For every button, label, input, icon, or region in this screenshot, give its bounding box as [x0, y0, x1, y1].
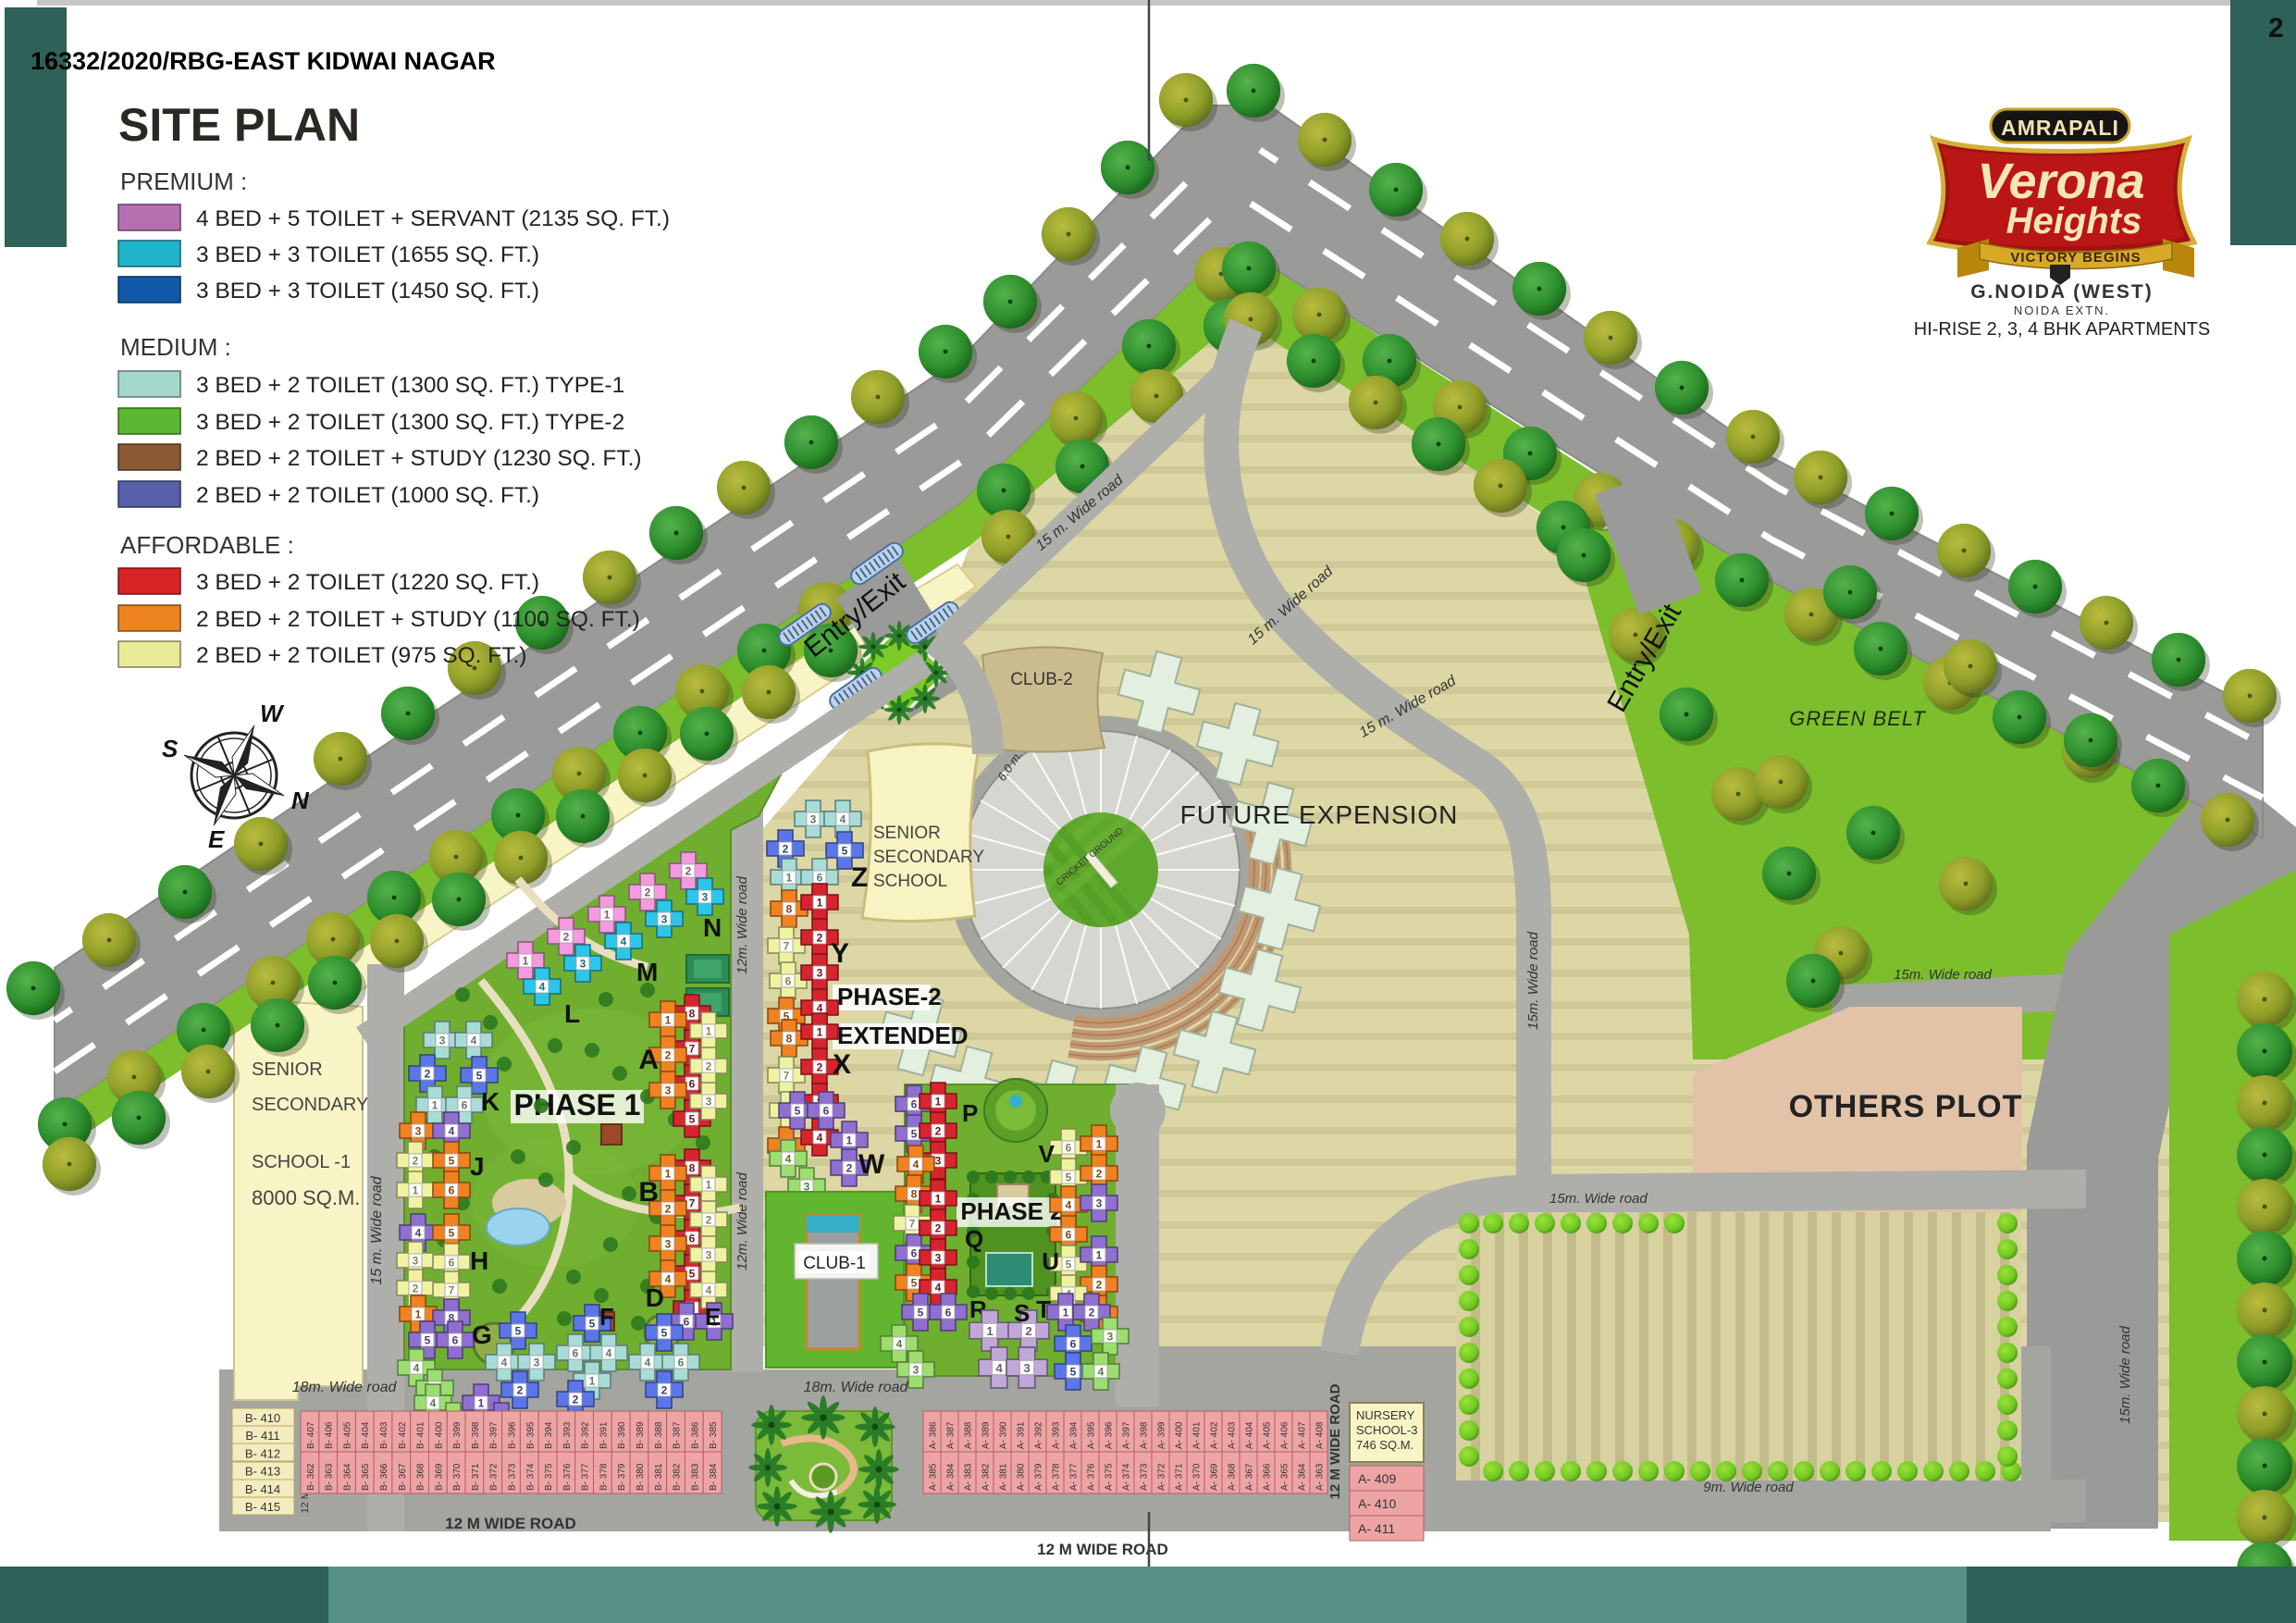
svg-text:B- 379: B- 379 — [617, 1463, 627, 1491]
svg-text:7: 7 — [449, 1284, 455, 1297]
svg-text:F: F — [599, 1303, 614, 1331]
svg-text:3: 3 — [810, 813, 817, 826]
svg-text:1: 1 — [415, 1308, 422, 1321]
svg-text:A- 378: A- 378 — [1052, 1463, 1062, 1491]
svg-text:2: 2 — [413, 1282, 419, 1295]
svg-text:1: 1 — [478, 1397, 485, 1410]
svg-text:16332/2020/RBG-EAST KIDWAI NAG: 16332/2020/RBG-EAST KIDWAI NAGAR — [31, 47, 496, 75]
svg-text:A- 389: A- 389 — [981, 1421, 992, 1449]
svg-text:1: 1 — [665, 1168, 672, 1181]
svg-text:8: 8 — [689, 1008, 696, 1021]
svg-text:6: 6 — [449, 1257, 455, 1270]
svg-text:3: 3 — [1107, 1331, 1114, 1344]
svg-text:4: 4 — [935, 1282, 942, 1295]
svg-text:CLUB-1: CLUB-1 — [803, 1254, 866, 1273]
svg-text:4 BED + 5 TOILET + SERVANT (21: 4 BED + 5 TOILET + SERVANT (2135 SQ. FT.… — [196, 206, 670, 231]
svg-text:6: 6 — [785, 975, 792, 988]
svg-text:SENIOR: SENIOR — [252, 1059, 323, 1080]
svg-text:1: 1 — [432, 1099, 438, 1112]
svg-text:PHASE 1: PHASE 1 — [514, 1088, 641, 1121]
svg-text:3: 3 — [415, 1125, 422, 1138]
svg-text:2: 2 — [661, 1384, 668, 1397]
svg-text:H: H — [470, 1246, 488, 1275]
svg-text:7: 7 — [689, 1197, 696, 1210]
svg-text:SCHOOL-3: SCHOOL-3 — [1356, 1423, 1417, 1437]
svg-text:B- 405: B- 405 — [342, 1421, 352, 1449]
svg-text:4: 4 — [414, 1362, 420, 1375]
svg-text:A- 385: A- 385 — [929, 1463, 939, 1491]
svg-text:6: 6 — [823, 1105, 830, 1118]
svg-text:6: 6 — [573, 1347, 579, 1360]
svg-text:U: U — [1042, 1247, 1059, 1275]
svg-text:A- 365: A- 365 — [1280, 1463, 1290, 1491]
svg-text:A- 397: A- 397 — [1122, 1421, 1132, 1449]
svg-text:B- 375: B- 375 — [544, 1463, 554, 1491]
svg-text:S: S — [162, 735, 179, 762]
svg-text:GREEN BELT: GREEN BELT — [1789, 707, 1926, 730]
svg-text:1: 1 — [846, 1134, 853, 1147]
svg-text:M: M — [636, 958, 658, 986]
svg-text:A- 367: A- 367 — [1245, 1463, 1255, 1491]
svg-text:2: 2 — [645, 886, 651, 899]
svg-text:746 SQ.M.: 746 SQ.M. — [1356, 1438, 1413, 1452]
svg-text:A- 401: A- 401 — [1192, 1421, 1203, 1449]
svg-text:E: E — [705, 1303, 721, 1331]
svg-text:18m. Wide road: 18m. Wide road — [804, 1380, 909, 1395]
svg-text:3: 3 — [817, 967, 823, 980]
svg-text:3: 3 — [665, 1084, 672, 1097]
svg-text:B- 381: B- 381 — [654, 1463, 664, 1491]
svg-text:A- 399: A- 399 — [1157, 1421, 1167, 1449]
svg-text:3: 3 — [702, 891, 709, 904]
svg-text:15m. Wide road: 15m. Wide road — [1894, 967, 1992, 983]
svg-text:A- 369: A- 369 — [1210, 1463, 1220, 1491]
svg-text:5: 5 — [911, 1277, 918, 1290]
svg-text:B- 389: B- 389 — [636, 1421, 646, 1449]
svg-text:A- 366: A- 366 — [1263, 1463, 1273, 1491]
svg-text:5: 5 — [842, 845, 848, 858]
svg-text:A- 411: A- 411 — [1358, 1521, 1395, 1536]
svg-text:A- 408: A- 408 — [1315, 1421, 1326, 1449]
svg-text:12 M WIDE ROAD: 12 M WIDE ROAD — [1327, 1383, 1343, 1499]
svg-text:A- 407: A- 407 — [1298, 1421, 1308, 1449]
svg-text:A- 377: A- 377 — [1069, 1463, 1080, 1491]
svg-text:5: 5 — [1070, 1366, 1077, 1379]
svg-text:A- 400: A- 400 — [1175, 1421, 1185, 1449]
svg-text:A- 386: A- 386 — [929, 1421, 939, 1449]
svg-text:B- 380: B- 380 — [636, 1463, 646, 1491]
svg-text:3: 3 — [935, 1155, 942, 1168]
svg-text:4: 4 — [817, 1132, 823, 1145]
svg-text:3: 3 — [665, 1238, 672, 1251]
svg-text:E: E — [208, 825, 225, 853]
svg-text:1: 1 — [413, 1184, 419, 1197]
svg-text:4: 4 — [785, 1153, 792, 1166]
svg-text:B- 376: B- 376 — [562, 1463, 573, 1491]
svg-text:4: 4 — [449, 1125, 455, 1138]
svg-text:12 M WIDE ROAD: 12 M WIDE ROAD — [445, 1515, 576, 1532]
svg-text:5: 5 — [425, 1334, 431, 1347]
svg-text:6: 6 — [449, 1184, 455, 1197]
svg-text:2: 2 — [665, 1203, 672, 1216]
svg-text:1: 1 — [523, 955, 529, 968]
svg-text:SITE PLAN: SITE PLAN — [118, 99, 360, 151]
svg-text:3 BED + 3 TOILET (1450 SQ. FT.: 3 BED + 3 TOILET (1450 SQ. FT.) — [196, 279, 539, 304]
svg-text:4: 4 — [1098, 1366, 1105, 1379]
svg-text:5: 5 — [1066, 1171, 1072, 1184]
svg-text:B- 362: B- 362 — [306, 1463, 316, 1491]
svg-text:2: 2 — [1096, 1279, 1103, 1292]
svg-text:4: 4 — [995, 1361, 1003, 1375]
svg-text:1: 1 — [935, 1193, 942, 1206]
svg-text:HI-RISE 2, 3, 4 BHK APARTMENTS: HI-RISE 2, 3, 4 BHK APARTMENTS — [1914, 319, 2210, 340]
svg-text:EXTENDED: EXTENDED — [837, 1022, 969, 1049]
svg-text:A- 393: A- 393 — [1052, 1421, 1062, 1449]
svg-text:8: 8 — [786, 903, 793, 916]
svg-text:B- 367: B- 367 — [398, 1463, 408, 1491]
svg-text:4: 4 — [415, 1227, 422, 1240]
svg-text:AFFORDABLE :: AFFORDABLE : — [120, 531, 294, 559]
svg-text:B- 413: B- 413 — [245, 1465, 280, 1479]
svg-text:B- 390: B- 390 — [617, 1421, 627, 1449]
svg-text:A- 363: A- 363 — [1315, 1463, 1326, 1491]
svg-text:PHASE-2: PHASE-2 — [837, 983, 942, 1010]
svg-text:8: 8 — [689, 1162, 696, 1175]
svg-text:1: 1 — [986, 1324, 993, 1338]
svg-text:AMRAPALI: AMRAPALI — [2001, 116, 2119, 140]
svg-text:N: N — [703, 913, 722, 942]
svg-text:2: 2 — [413, 1155, 419, 1168]
svg-text:A: A — [638, 1045, 659, 1075]
svg-text:B- 414: B- 414 — [245, 1482, 280, 1496]
svg-text:1: 1 — [817, 897, 823, 910]
svg-text:B- 383: B- 383 — [690, 1463, 700, 1491]
svg-text:B- 366: B- 366 — [379, 1463, 389, 1491]
svg-text:SECONDARY: SECONDARY — [873, 848, 984, 867]
svg-text:B- 372: B- 372 — [489, 1463, 500, 1491]
svg-text:3: 3 — [413, 1255, 419, 1268]
svg-text:3 BED + 3 TOILET (1655 SQ. FT.: 3 BED + 3 TOILET (1655 SQ. FT.) — [196, 242, 539, 267]
svg-text:A- 382: A- 382 — [981, 1463, 992, 1491]
svg-text:A- 372: A- 372 — [1157, 1463, 1167, 1491]
svg-text:5: 5 — [689, 1268, 696, 1281]
svg-text:6: 6 — [1066, 1229, 1072, 1242]
svg-text:SCHOOL: SCHOOL — [873, 872, 947, 891]
svg-text:B- 364: B- 364 — [342, 1463, 352, 1491]
svg-text:B- 388: B- 388 — [654, 1421, 664, 1449]
svg-text:A- 373: A- 373 — [1140, 1463, 1150, 1491]
svg-text:7: 7 — [689, 1043, 696, 1056]
svg-text:B- 365: B- 365 — [361, 1463, 371, 1491]
svg-text:4: 4 — [539, 981, 546, 994]
svg-text:7: 7 — [909, 1218, 916, 1231]
svg-text:A- 375: A- 375 — [1105, 1463, 1115, 1491]
svg-text:1: 1 — [1063, 1307, 1069, 1319]
svg-text:15m. Wide road: 15m. Wide road — [1525, 931, 1541, 1029]
svg-text:B- 368: B- 368 — [416, 1463, 426, 1491]
svg-text:B- 401: B- 401 — [416, 1421, 426, 1449]
svg-text:B- 398: B- 398 — [471, 1421, 481, 1449]
svg-text:15 m. Wide road: 15 m. Wide road — [369, 1175, 385, 1284]
svg-text:B- 385: B- 385 — [709, 1421, 719, 1449]
svg-text:1: 1 — [1096, 1249, 1103, 1262]
svg-text:2: 2 — [1096, 1168, 1103, 1181]
svg-text:A- 381: A- 381 — [999, 1463, 1009, 1491]
svg-text:1: 1 — [589, 1375, 596, 1388]
svg-text:A- 379: A- 379 — [1034, 1463, 1044, 1491]
svg-text:2: 2 — [1089, 1307, 1095, 1319]
svg-text:4: 4 — [621, 935, 627, 948]
svg-text:5: 5 — [449, 1155, 455, 1168]
svg-text:1: 1 — [1096, 1138, 1103, 1151]
svg-text:A- 391: A- 391 — [1017, 1421, 1027, 1449]
svg-text:6: 6 — [911, 1098, 918, 1111]
svg-text:2: 2 — [665, 1049, 672, 1062]
svg-text:3 BED + 2 TOILET (1300 SQ. FT.: 3 BED + 2 TOILET (1300 SQ. FT.) TYPE-1 — [196, 373, 624, 398]
svg-text:B- 374: B- 374 — [525, 1463, 536, 1491]
svg-text:B- 378: B- 378 — [599, 1463, 609, 1491]
svg-text:6: 6 — [1070, 1338, 1077, 1351]
svg-text:B- 397: B- 397 — [489, 1421, 500, 1449]
svg-text:B- 407: B- 407 — [306, 1421, 316, 1449]
svg-text:2: 2 — [685, 865, 692, 878]
svg-text:3: 3 — [580, 958, 586, 971]
svg-text:2: 2 — [817, 932, 823, 945]
svg-text:5: 5 — [449, 1227, 455, 1240]
svg-text:3: 3 — [439, 1035, 446, 1047]
svg-text:18m. Wide road: 18m. Wide road — [292, 1380, 398, 1395]
svg-text:15m. Wide road: 15m. Wide road — [1549, 1191, 1648, 1207]
svg-text:7: 7 — [784, 1070, 790, 1083]
svg-text:Y: Y — [831, 938, 849, 969]
svg-text:A- 410: A- 410 — [1358, 1496, 1396, 1511]
svg-text:W: W — [858, 1149, 885, 1180]
svg-text:1: 1 — [935, 1096, 942, 1109]
svg-text:A- 376: A- 376 — [1087, 1463, 1097, 1491]
svg-text:D: D — [646, 1283, 664, 1312]
svg-text:N: N — [291, 787, 310, 814]
svg-text:B- 392: B- 392 — [581, 1421, 591, 1449]
svg-text:B- 377: B- 377 — [581, 1463, 591, 1491]
svg-text:FUTURE EXPENSION: FUTURE EXPENSION — [1180, 800, 1459, 829]
svg-text:15m. Wide road: 15m. Wide road — [2117, 1325, 2133, 1423]
svg-text:8: 8 — [786, 1033, 793, 1046]
svg-text:2: 2 — [817, 1061, 823, 1074]
svg-text:Q: Q — [965, 1225, 983, 1253]
svg-text:T: T — [1036, 1295, 1051, 1323]
svg-text:B: B — [638, 1177, 659, 1208]
svg-text:2: 2 — [935, 1222, 942, 1235]
svg-text:A- 371: A- 371 — [1175, 1463, 1185, 1491]
svg-text:1: 1 — [665, 1014, 672, 1027]
svg-text:B- 415: B- 415 — [245, 1500, 280, 1514]
svg-text:2: 2 — [2268, 13, 2284, 43]
svg-text:12m. Wide road: 12m. Wide road — [734, 1171, 750, 1270]
svg-text:2 BED + 2 TOILET (975 SQ. FT.: 2 BED + 2 TOILET (975 SQ. FT.) — [196, 643, 526, 668]
svg-text:PHASE 2: PHASE 2 — [960, 1197, 1063, 1225]
svg-text:VICTORY BEGINS: VICTORY BEGINS — [2010, 250, 2141, 266]
svg-text:B- 363: B- 363 — [325, 1463, 335, 1491]
svg-text:5: 5 — [911, 1128, 918, 1141]
svg-text:A- 383: A- 383 — [964, 1463, 974, 1491]
svg-text:6: 6 — [462, 1099, 468, 1112]
svg-text:Heights: Heights — [2006, 201, 2142, 242]
svg-text:A- 398: A- 398 — [1140, 1421, 1150, 1449]
svg-text:3: 3 — [935, 1252, 942, 1265]
svg-text:6: 6 — [945, 1307, 952, 1319]
svg-text:B- 394: B- 394 — [544, 1421, 554, 1449]
svg-text:5: 5 — [918, 1307, 924, 1319]
svg-text:B- 393: B- 393 — [562, 1421, 573, 1449]
svg-text:9m. Wide road: 9m. Wide road — [1703, 1480, 1794, 1495]
svg-text:8000 SQ.M.: 8000 SQ.M. — [252, 1186, 360, 1209]
svg-text:Z: Z — [851, 862, 868, 893]
svg-text:A- 370: A- 370 — [1192, 1463, 1203, 1491]
svg-text:5: 5 — [476, 1070, 483, 1083]
svg-text:4: 4 — [840, 813, 846, 826]
svg-text:W: W — [260, 700, 285, 727]
svg-text:2: 2 — [563, 931, 570, 944]
svg-text:7: 7 — [784, 940, 790, 953]
svg-text:5: 5 — [689, 1113, 696, 1126]
svg-text:3: 3 — [661, 913, 668, 926]
svg-text:B- 370: B- 370 — [452, 1463, 463, 1491]
svg-text:4: 4 — [896, 1338, 903, 1351]
svg-text:CLUB-2: CLUB-2 — [1010, 670, 1073, 689]
svg-text:B- 406: B- 406 — [325, 1421, 335, 1449]
svg-text:OTHERS PLOT: OTHERS PLOT — [1789, 1089, 2023, 1124]
svg-text:3: 3 — [706, 1096, 712, 1109]
svg-text:G.NOIDA (WEST): G.NOIDA (WEST) — [1970, 281, 2154, 303]
svg-text:A- 374: A- 374 — [1122, 1463, 1132, 1491]
svg-text:B- 384: B- 384 — [709, 1463, 719, 1491]
svg-text:3: 3 — [1096, 1197, 1103, 1210]
svg-text:A- 384: A- 384 — [946, 1463, 957, 1491]
svg-text:X: X — [833, 1049, 851, 1080]
svg-text:B- 382: B- 382 — [673, 1463, 683, 1491]
svg-text:SECONDARY: SECONDARY — [252, 1095, 368, 1115]
svg-text:5: 5 — [795, 1105, 801, 1118]
svg-text:4: 4 — [913, 1158, 920, 1171]
svg-text:2: 2 — [846, 1162, 853, 1175]
svg-text:A- 380: A- 380 — [1017, 1463, 1027, 1491]
svg-text:5: 5 — [1066, 1258, 1072, 1271]
svg-text:2: 2 — [573, 1394, 579, 1406]
svg-text:A- 388: A- 388 — [964, 1421, 974, 1449]
svg-text:A- 396: A- 396 — [1105, 1421, 1115, 1449]
svg-text:A- 395: A- 395 — [1087, 1421, 1097, 1449]
svg-text:A- 392: A- 392 — [1034, 1421, 1044, 1449]
svg-text:NURSERY: NURSERY — [1356, 1408, 1415, 1422]
svg-text:B- 373: B- 373 — [508, 1463, 518, 1491]
svg-text:6: 6 — [689, 1233, 696, 1245]
svg-text:A- 364: A- 364 — [1298, 1463, 1308, 1491]
svg-text:B- 395: B- 395 — [525, 1421, 536, 1449]
svg-text:3 BED + 2 TOILET (1220 SQ. FT.: 3 BED + 2 TOILET (1220 SQ. FT.) — [196, 570, 539, 595]
svg-text:12m. Wide road: 12m. Wide road — [734, 875, 750, 973]
svg-text:4: 4 — [706, 1284, 712, 1297]
svg-text:B- 404: B- 404 — [361, 1421, 371, 1449]
svg-text:2: 2 — [517, 1384, 524, 1397]
svg-text:4: 4 — [501, 1357, 508, 1369]
svg-text:2 BED + 2 TOILET + STUDY (1100: 2 BED + 2 TOILET + STUDY (1100 SQ. FT.) — [196, 607, 640, 632]
svg-text:3 BED + 2 TOILET (1300 SQ. FT.: 3 BED + 2 TOILET (1300 SQ. FT.) TYPE-2 — [196, 410, 624, 435]
svg-text:5: 5 — [515, 1325, 522, 1338]
svg-text:A- 405: A- 405 — [1263, 1421, 1273, 1449]
svg-text:3: 3 — [534, 1357, 540, 1369]
svg-text:2: 2 — [425, 1068, 431, 1081]
svg-text:NOIDA EXTN.: NOIDA EXTN. — [2014, 304, 2110, 317]
svg-text:A- 404: A- 404 — [1245, 1421, 1255, 1449]
svg-text:1: 1 — [706, 1025, 712, 1038]
svg-text:J: J — [470, 1152, 485, 1181]
svg-text:B- 403: B- 403 — [379, 1421, 389, 1449]
svg-text:B- 369: B- 369 — [434, 1463, 444, 1491]
svg-text:A- 390: A- 390 — [999, 1421, 1009, 1449]
svg-text:1: 1 — [604, 909, 611, 922]
svg-text:6: 6 — [684, 1316, 690, 1329]
svg-text:PREMIUM :: PREMIUM : — [120, 167, 247, 195]
svg-text:6: 6 — [1066, 1142, 1072, 1155]
svg-text:2: 2 — [706, 1214, 712, 1227]
svg-text:B- 400: B- 400 — [434, 1421, 444, 1449]
svg-text:A- 409: A- 409 — [1358, 1471, 1396, 1486]
svg-text:1: 1 — [706, 1179, 712, 1192]
svg-text:B- 386: B- 386 — [690, 1421, 700, 1449]
svg-text:2: 2 — [935, 1125, 942, 1138]
svg-text:B- 412: B- 412 — [245, 1446, 280, 1460]
svg-text:A- 406: A- 406 — [1280, 1421, 1290, 1449]
svg-text:S: S — [1014, 1299, 1030, 1327]
svg-text:1: 1 — [786, 872, 793, 885]
svg-text:B- 396: B- 396 — [508, 1421, 518, 1449]
svg-text:P: P — [962, 1099, 978, 1127]
svg-text:4: 4 — [471, 1035, 477, 1047]
svg-text:B- 371: B- 371 — [471, 1463, 481, 1491]
svg-text:B- 391: B- 391 — [599, 1421, 609, 1449]
svg-text:1: 1 — [817, 1026, 823, 1039]
svg-text:B- 402: B- 402 — [398, 1421, 408, 1449]
svg-text:8: 8 — [911, 1188, 918, 1201]
svg-text:6: 6 — [452, 1334, 459, 1347]
svg-text:4: 4 — [665, 1273, 672, 1286]
svg-text:2: 2 — [783, 843, 789, 856]
svg-text:6: 6 — [678, 1357, 685, 1369]
svg-text:G: G — [472, 1320, 492, 1349]
svg-text:A- 368: A- 368 — [1228, 1463, 1238, 1491]
svg-text:2: 2 — [706, 1060, 712, 1073]
svg-text:4: 4 — [606, 1347, 612, 1360]
svg-text:B- 411: B- 411 — [245, 1429, 279, 1443]
svg-text:MEDIUM :: MEDIUM : — [120, 333, 231, 361]
svg-text:SENIOR: SENIOR — [873, 824, 941, 843]
svg-text:B- 410: B- 410 — [245, 1411, 280, 1425]
svg-text:6: 6 — [689, 1078, 696, 1091]
svg-text:2 BED + 2 TOILET + STUDY (1230: 2 BED + 2 TOILET + STUDY (1230 SQ. FT.) — [196, 446, 642, 471]
svg-text:4: 4 — [430, 1397, 437, 1410]
svg-text:A- 387: A- 387 — [946, 1421, 957, 1449]
svg-text:K: K — [481, 1087, 500, 1116]
svg-text:A- 394: A- 394 — [1069, 1421, 1080, 1449]
svg-text:5: 5 — [661, 1327, 668, 1340]
svg-text:SCHOOL -1: SCHOOL -1 — [252, 1152, 351, 1172]
svg-text:A- 403: A- 403 — [1228, 1421, 1238, 1449]
svg-text:3: 3 — [1023, 1361, 1030, 1375]
svg-text:B- 387: B- 387 — [673, 1421, 683, 1449]
svg-text:3: 3 — [913, 1364, 920, 1377]
svg-text:3: 3 — [706, 1249, 712, 1262]
svg-text:B- 399: B- 399 — [452, 1421, 463, 1449]
